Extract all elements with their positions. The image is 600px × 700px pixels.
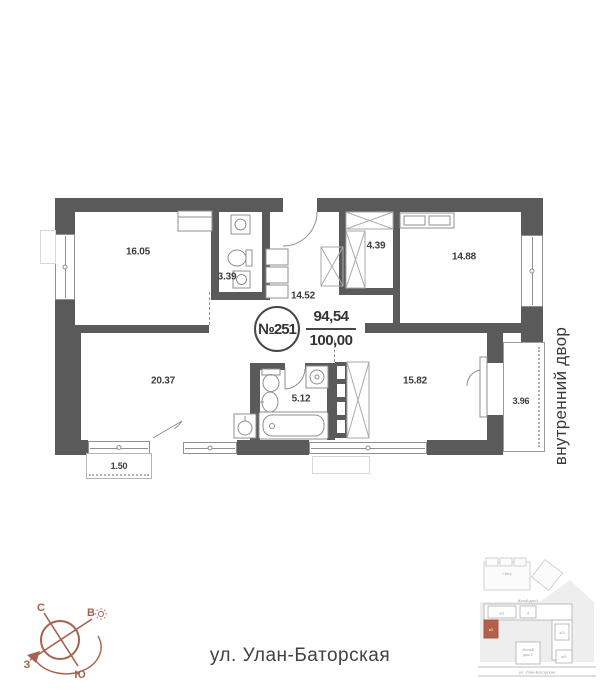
room-label-bath-small: 3.39: [218, 272, 237, 283]
room-label-kitchen-living: 20.37: [151, 376, 175, 387]
location-minimap: Сквер Жилой дом 4 к/1 4 к/3 к/4 Жилой до…: [476, 556, 598, 680]
minimap-red-block-label: к/2: [489, 628, 494, 632]
hall-niche-shelves: [266, 249, 288, 298]
sink-big-bath-icon: [260, 392, 278, 412]
minimap-house-bottom-label2: дом 2: [523, 653, 533, 657]
balcony-door-leaf: [153, 421, 182, 438]
minimap-house-top-label: Жилой дом 4: [518, 599, 539, 603]
street-label: ул. Улан-Баторская: [210, 645, 390, 667]
apartment-number: №251: [258, 321, 296, 338]
washer-big-bath-icon: [306, 366, 328, 388]
compass-arrow-arc: [34, 636, 101, 674]
fraction-bar: [306, 328, 356, 330]
minimap-park-label: Сквер: [502, 572, 512, 576]
toilet-big-bath-icon: [262, 369, 280, 392]
area-fraction: 94,54 100,00: [304, 307, 358, 351]
room-label-loggia: 3.96: [513, 396, 530, 406]
area-living-total: 94,54: [304, 307, 358, 327]
toilet-small-bath-icon: [228, 250, 252, 266]
minimap-block4-label: к/4: [561, 654, 567, 659]
room-label-bedroom-bottom: 15.82: [403, 376, 427, 387]
wardrobe-bedroom-right-icon: [400, 213, 454, 228]
loggia-door: [467, 357, 487, 417]
floorplan-page: 1.50: [0, 0, 600, 700]
compass-label-east: В: [87, 607, 95, 619]
minimap-block1-label: к/1: [499, 611, 505, 616]
shaft-icon: [321, 247, 343, 286]
room-label-bath-big: 5.12: [292, 394, 311, 405]
room-label-bedroom-right: 14.88: [452, 252, 476, 263]
room-label-living: 16.05: [126, 247, 150, 258]
compass-rose: С В З Ю: [14, 596, 110, 688]
room-label-wardrobe: 4.39: [367, 241, 386, 252]
minimap-house-bottom-label1: Жилой: [522, 648, 533, 652]
wardrobe-bedroom-icon: [347, 362, 369, 438]
minimap-block3-label: к/3: [559, 630, 565, 635]
wardrobe-top-icon: [346, 212, 393, 229]
room-label-hallway: 14.52: [291, 291, 315, 302]
apartment-number-badge: №251: [254, 306, 300, 352]
compass-label-north: С: [37, 602, 45, 614]
minimap-park-buildings: [484, 558, 562, 590]
courtyard-label: внутренний двор: [551, 327, 571, 465]
cabinet-living-icon: [178, 211, 212, 231]
bathtub-icon: [259, 412, 328, 439]
entrance-door-arc: [283, 212, 317, 246]
bathroom-big-door: [285, 368, 305, 389]
compass-label-west: З: [24, 659, 31, 671]
kitchen-sink-icon: [234, 414, 256, 438]
compass-label-south: Ю: [74, 669, 85, 681]
area-overall: 100,00: [304, 331, 358, 351]
sink-small-bath-icon: [231, 215, 250, 234]
sun-icon: [95, 608, 107, 620]
wardrobe-tall-icon: [346, 231, 365, 288]
minimap-road-label: ул. Улан-Баторская: [519, 670, 555, 675]
